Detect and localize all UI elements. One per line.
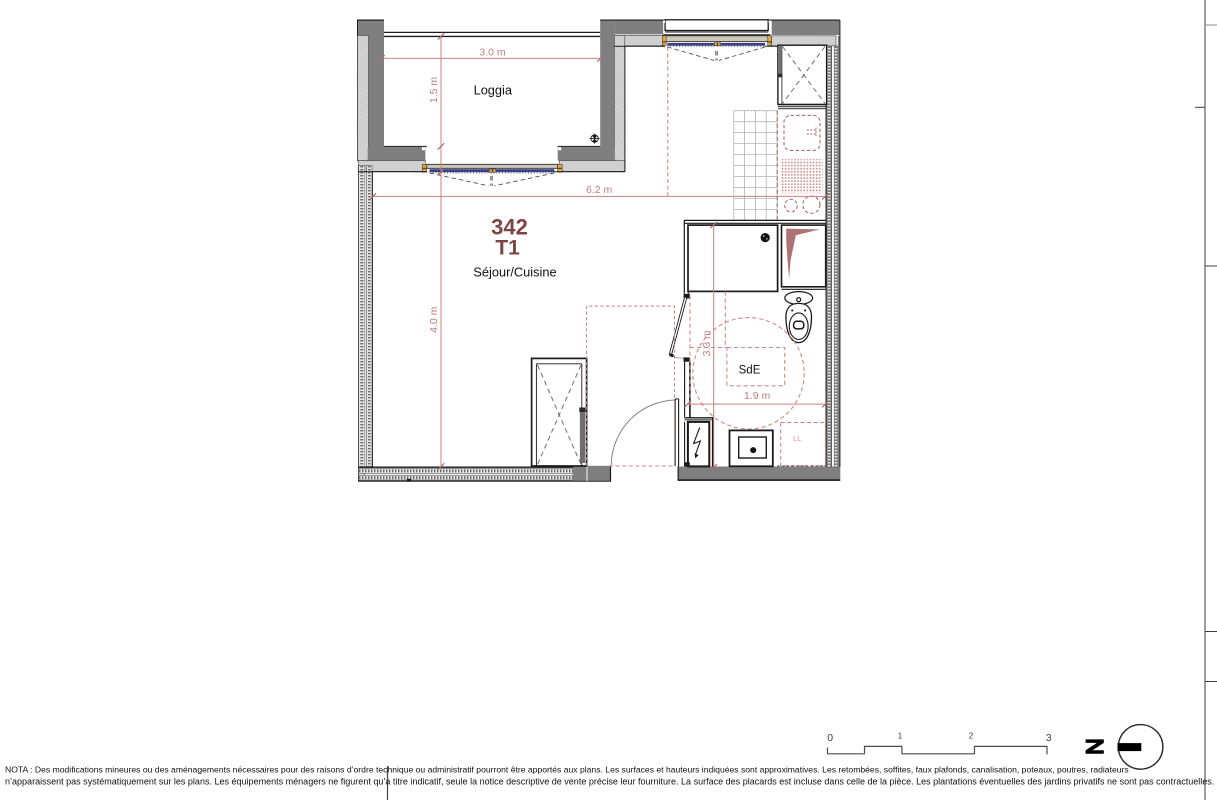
svg-text:SdE: SdE (739, 365, 761, 377)
svg-text:4.0 m: 4.0 m (428, 306, 440, 333)
svg-text:0: 0 (827, 732, 833, 744)
svg-text:3.3 m: 3.3 m (701, 330, 713, 357)
svg-text:Loggia: Loggia (474, 83, 513, 98)
svg-text:1.9 m: 1.9 m (744, 390, 771, 402)
svg-text:n’apparaissent pas systématiqu: n’apparaissent pas systématiquement sur … (5, 776, 1214, 786)
svg-text:1: 1 (898, 732, 903, 741)
svg-text:1.5 m: 1.5 m (428, 77, 440, 104)
svg-text:Séjour/Cuisine: Séjour/Cuisine (473, 264, 556, 279)
svg-text:3: 3 (1046, 732, 1052, 744)
svg-text:3.0 m: 3.0 m (479, 46, 506, 58)
svg-text:T1: T1 (495, 236, 520, 259)
svg-text:6.2 m: 6.2 m (586, 184, 613, 196)
svg-text:2: 2 (969, 732, 974, 741)
svg-text:LL: LL (793, 434, 801, 443)
svg-text:NOTA : Des modifications mineu: NOTA : Des modifications mineures ou des… (5, 765, 1129, 775)
